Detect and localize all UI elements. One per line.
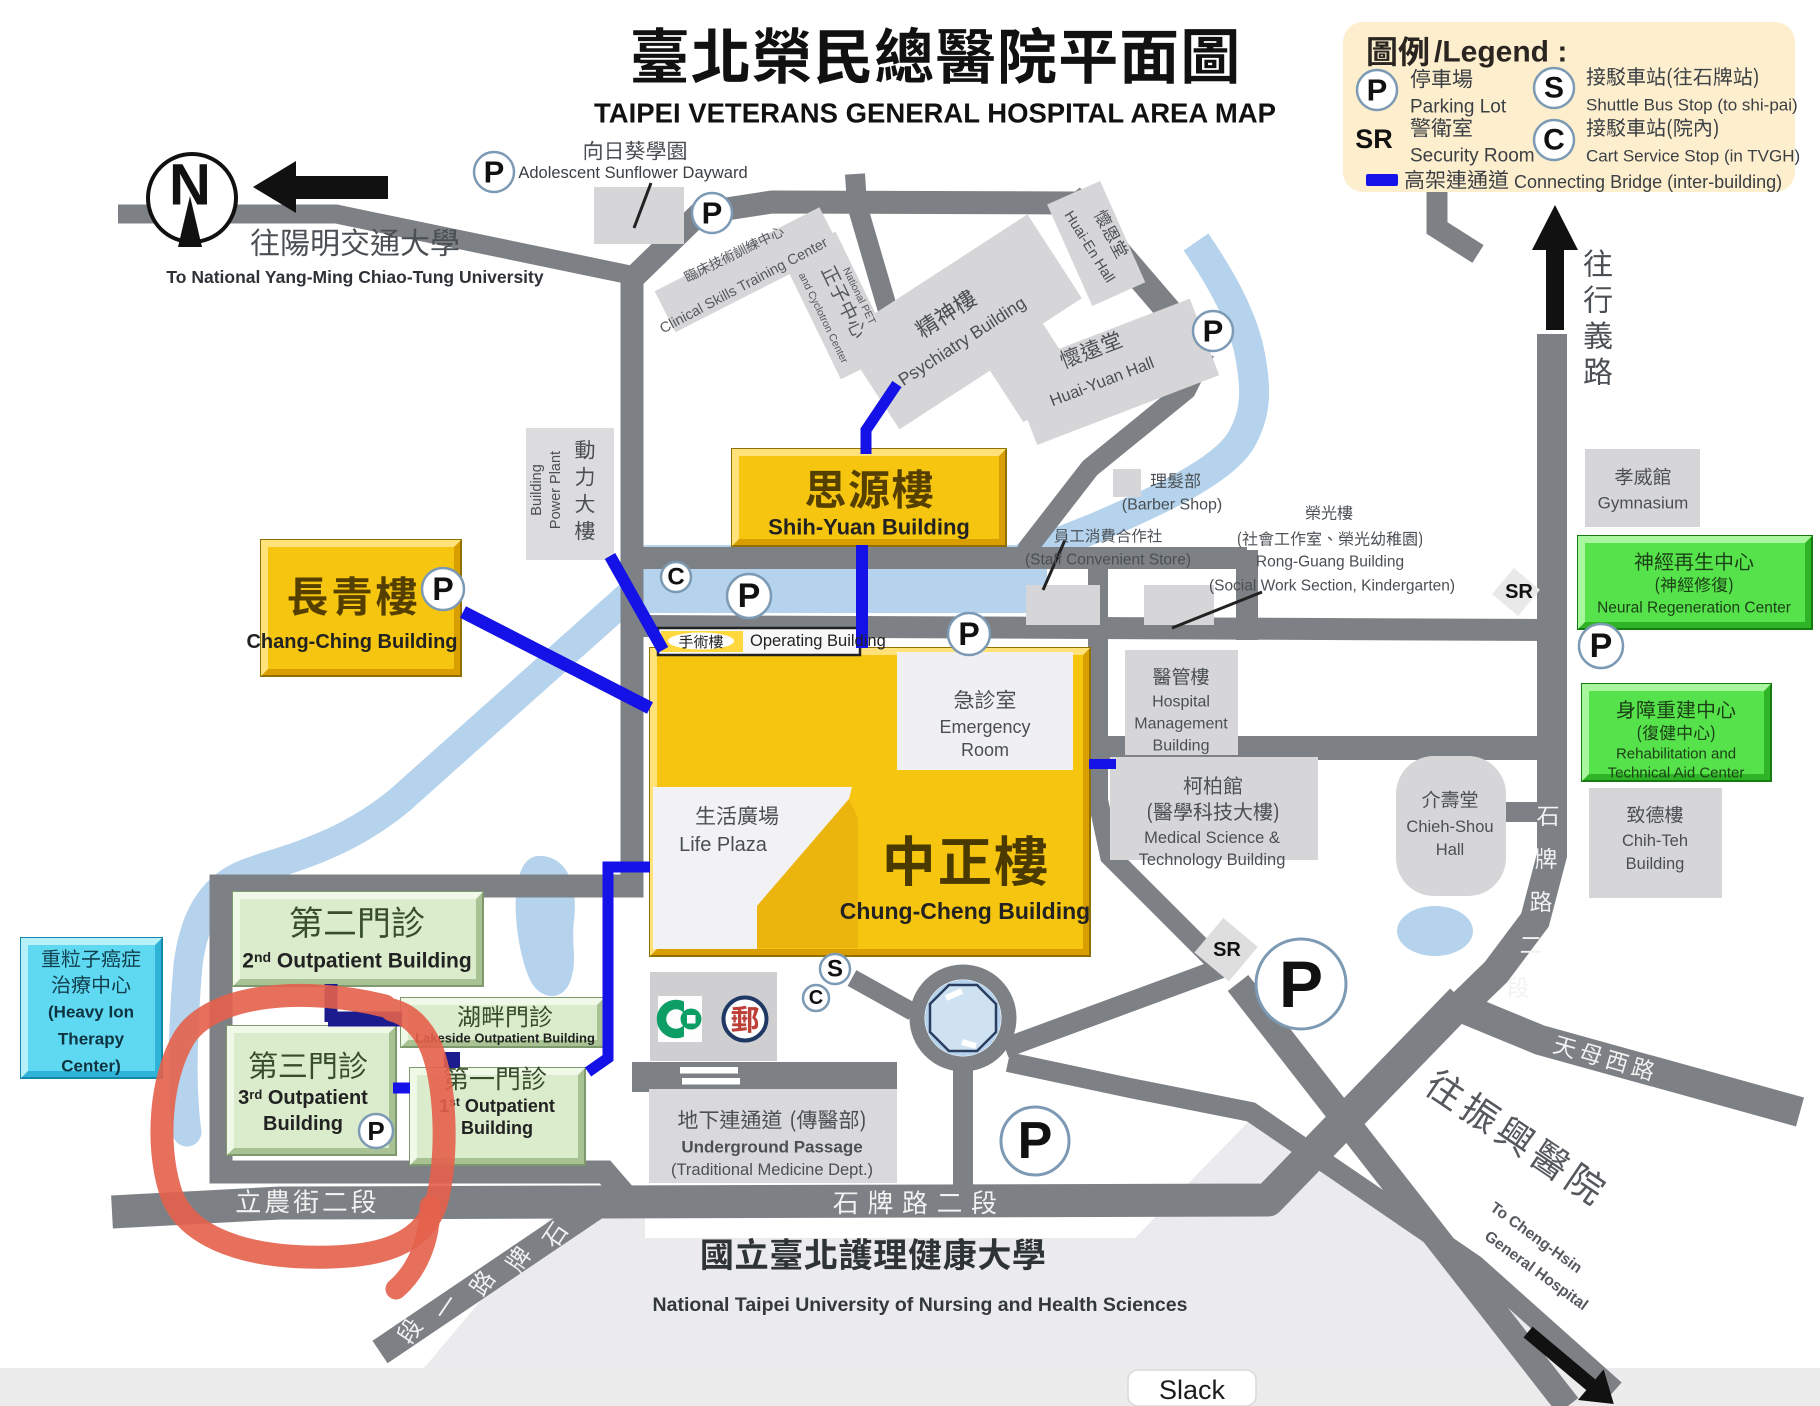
svg-text:(Heavy Ion: (Heavy Ion xyxy=(48,1003,134,1022)
svg-text:Chang-Ching Building: Chang-Ching Building xyxy=(246,631,457,653)
svg-text:P: P xyxy=(484,155,505,190)
svg-text:Adolescent Sunflower Dayward: Adolescent Sunflower Dayward xyxy=(518,164,747,182)
svg-text:Parking Lot: Parking Lot xyxy=(1410,97,1507,118)
svg-text:Connecting Bridge (inter-build: Connecting Bridge (inter-building) xyxy=(1514,172,1782,192)
svg-text:Hall: Hall xyxy=(1436,841,1464,859)
svg-text:Chih-Teh: Chih-Teh xyxy=(1622,832,1688,850)
svg-text:(Barber Shop): (Barber Shop) xyxy=(1122,497,1223,514)
svg-text:Emergency: Emergency xyxy=(939,717,1030,737)
svg-text:Life Plaza: Life Plaza xyxy=(679,834,768,856)
svg-text:(Social Work Section, Kinderga: (Social Work Section, Kindergarten) xyxy=(1209,578,1455,595)
svg-text:S: S xyxy=(1544,72,1564,105)
svg-text:(Staff Convenient Store): (Staff Convenient Store) xyxy=(1025,552,1191,569)
svg-text:P: P xyxy=(738,577,761,615)
svg-text:SR: SR xyxy=(1355,124,1393,154)
svg-text:Building: Building xyxy=(529,464,545,516)
svg-text:Slack: Slack xyxy=(1159,1375,1226,1405)
svg-text:Shuttle Bus Stop (to shi-pai): Shuttle Bus Stop (to shi-pai) xyxy=(1586,96,1798,115)
svg-text:P: P xyxy=(958,616,979,652)
svg-text:Technical Aid Center: Technical Aid Center xyxy=(1608,765,1745,782)
svg-text:Chung-Cheng Building: Chung-Cheng Building xyxy=(840,898,1090,924)
svg-text:Lakeside Outpatient Building: Lakeside Outpatient Building xyxy=(415,1031,595,1046)
svg-text:C: C xyxy=(1543,124,1565,157)
svg-text:TAIPEI VETERANS GENERAL HOSPIT: TAIPEI VETERANS GENERAL HOSPITAL AREA MA… xyxy=(594,98,1276,129)
svg-text:P: P xyxy=(1203,314,1224,349)
svg-text:Building: Building xyxy=(1153,738,1210,755)
svg-text:Security Room: Security Room xyxy=(1410,146,1535,167)
svg-text:Center): Center) xyxy=(61,1057,121,1076)
svg-text:P: P xyxy=(1279,947,1323,1021)
svg-text:Power Plant: Power Plant xyxy=(548,451,564,529)
svg-text:P: P xyxy=(367,1116,384,1146)
svg-text:Hospital: Hospital xyxy=(1152,694,1210,711)
svg-text:P: P xyxy=(432,571,453,607)
svg-text:Management: Management xyxy=(1134,716,1228,733)
svg-text:SR: SR xyxy=(1505,581,1533,603)
svg-text:2nd Outpatient Building: 2nd Outpatient Building xyxy=(242,949,471,973)
svg-text:S: S xyxy=(827,956,843,983)
svg-text:(Traditional Medicine Dept.): (Traditional Medicine Dept.) xyxy=(671,1161,873,1179)
svg-text:Shih-Yuan Building: Shih-Yuan Building xyxy=(768,515,970,540)
svg-text:National Taipei University of: National Taipei University of Nursing an… xyxy=(653,1294,1188,1316)
svg-text:Chieh-Shou: Chieh-Shou xyxy=(1406,818,1493,836)
svg-text:C: C xyxy=(809,987,823,1009)
svg-text:Therapy: Therapy xyxy=(58,1030,125,1049)
svg-text:SR: SR xyxy=(1213,939,1241,961)
svg-text:Rong-Guang Building: Rong-Guang Building xyxy=(1256,554,1404,571)
svg-text:Underground Passage: Underground Passage xyxy=(681,1138,862,1157)
svg-text:P: P xyxy=(1367,73,1388,108)
svg-text:Building: Building xyxy=(461,1118,533,1138)
svg-text:Building: Building xyxy=(263,1113,343,1135)
svg-text:To National Yang-Ming Chiao-Tu: To National Yang-Ming Chiao-Tung Univers… xyxy=(166,267,544,287)
svg-text:P: P xyxy=(702,196,723,231)
svg-text:/Legend :: /Legend : xyxy=(1434,36,1567,69)
svg-text:Gymnasium: Gymnasium xyxy=(1598,494,1689,513)
svg-text:P: P xyxy=(1018,1112,1053,1170)
svg-text:Neural Regeneration Center: Neural Regeneration Center xyxy=(1597,600,1791,617)
svg-text:P: P xyxy=(1590,627,1613,665)
svg-text:Medical Science &: Medical Science & xyxy=(1144,829,1280,847)
svg-text:Rehabilitation and: Rehabilitation and xyxy=(1616,746,1736,763)
svg-text:Operating Building: Operating Building xyxy=(750,632,886,650)
svg-text:Cart Service Stop (in TVGH): Cart Service Stop (in TVGH) xyxy=(1586,147,1800,166)
svg-text:Technology Building: Technology Building xyxy=(1139,851,1286,869)
svg-text:Building: Building xyxy=(1626,855,1685,873)
svg-text:C: C xyxy=(667,564,684,591)
svg-text:Room: Room xyxy=(961,740,1009,760)
